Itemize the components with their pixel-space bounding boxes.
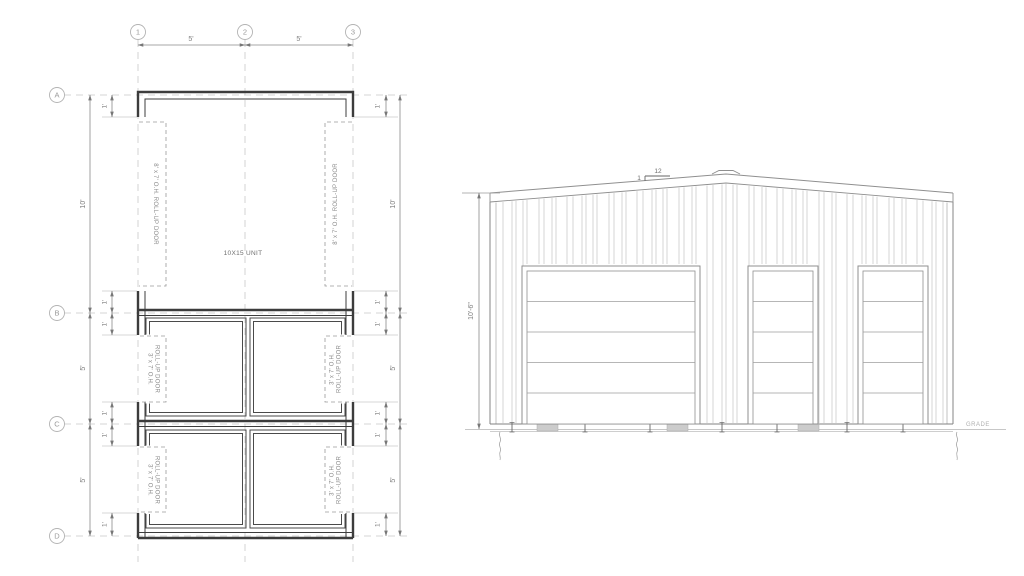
door-label-large-right: 8' x 7' O.H. ROLL-UP DOOR xyxy=(333,163,339,245)
grid-label-b: B xyxy=(54,309,59,318)
grade-label: GRADE xyxy=(966,422,990,428)
elevation-door-right xyxy=(858,266,928,424)
unit-label: 10X15 UNIT xyxy=(224,250,263,257)
dim-right-5ft-1: 5' xyxy=(390,365,397,370)
grid-bubbles xyxy=(50,25,361,544)
elevation-door-large xyxy=(522,266,700,424)
door-label-small-br: 3' x 7' O.H. ROLL-UP DOOR xyxy=(330,345,343,393)
svg-text:3' x 7' O.H.: 3' x 7' O.H. xyxy=(147,464,153,496)
grid-label-c: C xyxy=(54,420,60,429)
dim-right-5ft-2: 5' xyxy=(390,477,397,482)
dim-one-foot: 1' xyxy=(102,411,109,416)
dim-top-bay1: 5' xyxy=(188,36,193,43)
unit-partition-walls xyxy=(146,318,345,528)
dim-one-foot: 1' xyxy=(102,433,109,438)
drawing-sheet: 1 2 3 A B C D 5' 5' 10' 5' 5' 10' 5' xyxy=(0,0,1024,576)
dim-one-foot: 1' xyxy=(375,104,382,109)
dim-one-foot: 1' xyxy=(375,411,382,416)
grid-lines xyxy=(64,40,410,562)
svg-text:3' x 7' O.H.: 3' x 7' O.H. xyxy=(330,464,336,496)
grid-label-3: 3 xyxy=(351,28,355,37)
dim-top-bay2: 5' xyxy=(296,36,301,43)
door-label-large-left: 8' x 7' O.H. ROLL-UP DOOR xyxy=(152,163,158,245)
dim-one-foot: 1' xyxy=(102,300,109,305)
elevation-height-dimension: 10'-6" xyxy=(462,193,500,429)
dim-left-5ft-1: 5' xyxy=(80,365,87,370)
architectural-drawing: 1 2 3 A B C D 5' 5' 10' 5' 5' 10' 5' xyxy=(0,0,1024,576)
footing-break-lines xyxy=(499,432,957,460)
dim-left-5ft-2: 5' xyxy=(80,477,87,482)
slope-run: 12 xyxy=(654,168,662,175)
grid-label-d: D xyxy=(54,532,60,541)
dim-one-foot: 1' xyxy=(375,522,382,527)
svg-text:ROLL-UP DOOR: ROLL-UP DOOR xyxy=(154,345,160,393)
dim-one-foot: 1' xyxy=(375,433,382,438)
svg-text:3' x 7' O.H.: 3' x 7' O.H. xyxy=(330,353,336,385)
svg-text:3' x 7' O.H.: 3' x 7' O.H. xyxy=(147,353,153,385)
door-labels: 8' x 7' O.H. ROLL-UP DOOR 8' x 7' O.H. R… xyxy=(147,163,343,505)
dim-one-foot: 1' xyxy=(102,322,109,327)
door-label-small-cr: 3' x 7' O.H. ROLL-UP DOOR xyxy=(330,456,343,504)
dim-left-10ft: 10' xyxy=(80,199,87,208)
dim-one-foot: 1' xyxy=(375,322,382,327)
grid-label-2: 2 xyxy=(243,28,247,37)
elevation-doors xyxy=(522,266,928,424)
elevation-door-middle xyxy=(748,266,818,424)
front-elevation-view: GRADE xyxy=(462,168,1006,460)
grid-label-a: A xyxy=(54,91,59,100)
dim-eave-height: 10'-6" xyxy=(468,302,475,320)
grid-bubble-labels: 1 2 3 A B C D xyxy=(54,28,355,541)
svg-text:ROLL-UP DOOR: ROLL-UP DOOR xyxy=(337,456,343,504)
slope-rise: 1 xyxy=(637,175,641,182)
floor-plan-view: 1 2 3 A B C D 5' 5' 10' 5' 5' 10' 5' xyxy=(50,25,411,563)
ridge-cap xyxy=(712,171,740,175)
dim-one-foot: 1' xyxy=(102,104,109,109)
svg-text:ROLL-UP DOOR: ROLL-UP DOOR xyxy=(154,456,160,504)
svg-text:ROLL-UP DOOR: ROLL-UP DOOR xyxy=(337,345,343,393)
dim-one-foot: 1' xyxy=(375,300,382,305)
grid-label-1: 1 xyxy=(136,28,140,37)
dim-one-foot: 1' xyxy=(102,522,109,527)
dim-right-10ft: 10' xyxy=(390,199,397,208)
